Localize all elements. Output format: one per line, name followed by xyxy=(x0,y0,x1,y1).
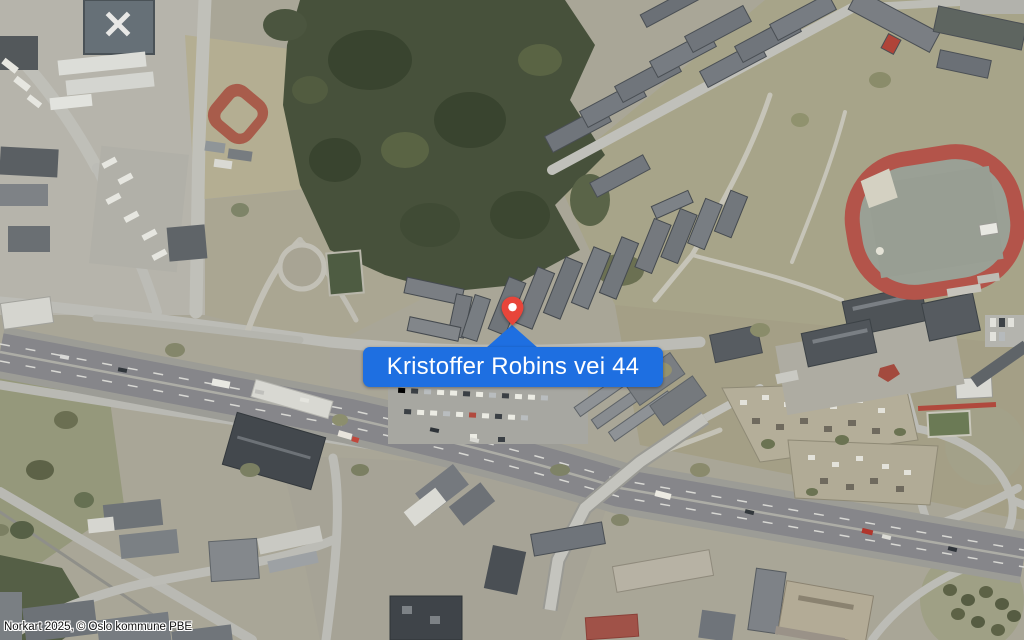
address-callout-label: Kristoffer Robins vei 44 xyxy=(387,353,639,381)
location-pin-icon[interactable] xyxy=(501,296,524,326)
address-callout-arrow xyxy=(486,325,538,348)
pin-dot xyxy=(508,303,516,311)
map-viewport[interactable]: Kristoffer Robins vei 44 Norkart 2025, ©… xyxy=(0,0,1024,640)
map-attribution: Norkart 2025, © Oslo kommune PBE xyxy=(4,621,192,633)
address-callout[interactable]: Kristoffer Robins vei 44 xyxy=(363,347,663,387)
